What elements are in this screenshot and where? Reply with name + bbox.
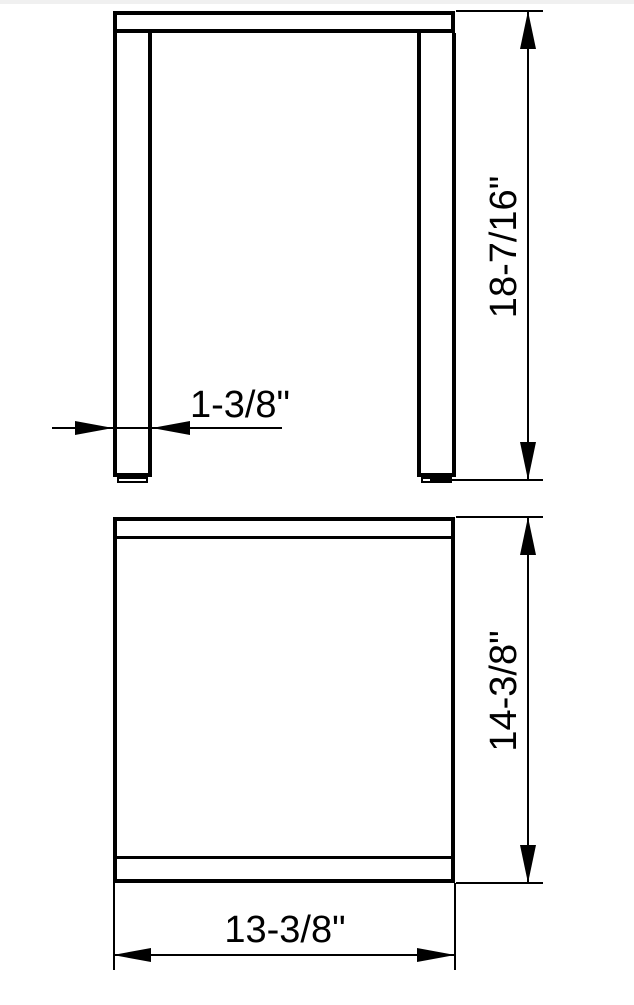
arrow-up-icon: [520, 517, 536, 555]
depth-dimension-label: 14-3/8": [485, 630, 525, 751]
dimension-line-horizontal: [113, 954, 455, 956]
page-top-strip: [0, 0, 634, 4]
arrow-right-icon: [75, 421, 113, 435]
arrow-left-icon: [152, 421, 190, 435]
leg-width-dimension-label: 1-3/8": [190, 386, 290, 426]
tabletop-outline: [113, 11, 455, 33]
arrow-right-icon: [417, 948, 455, 962]
seat-inner-edge-bottom: [113, 856, 455, 859]
dimension-line-vertical: [527, 517, 529, 883]
arrow-left-icon: [113, 948, 151, 962]
technical-drawing-canvas: 18-7/16" 1-3/8" 14-3/8": [0, 0, 634, 1005]
left-leg-foot: [117, 477, 148, 483]
width-dimension-label: 13-3/8": [224, 911, 345, 951]
height-dimension-label: 18-7/16": [485, 176, 525, 318]
arrow-down-icon: [520, 845, 536, 883]
arrow-up-icon: [520, 11, 536, 49]
dimension-line-vertical: [527, 11, 529, 480]
seat-inner-edge-top: [113, 536, 455, 539]
right-leg-outline: [417, 33, 456, 477]
left-leg-outline: [113, 33, 152, 477]
arrow-down-icon: [520, 442, 536, 480]
seat-outline: [113, 517, 455, 883]
